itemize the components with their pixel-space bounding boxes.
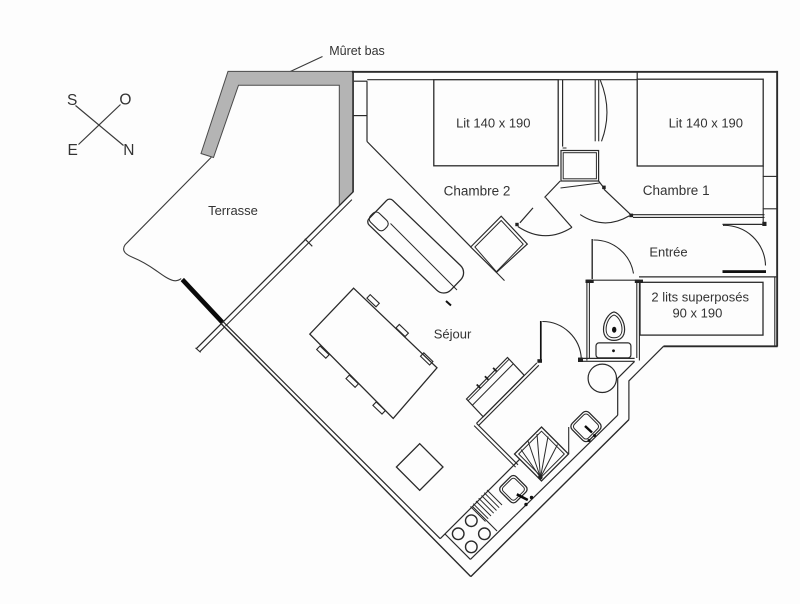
svg-text:Lit 140 x 190: Lit 140 x 190 <box>456 116 530 131</box>
svg-text:Lit 140 x 190: Lit 140 x 190 <box>669 116 743 131</box>
svg-text:Séjour: Séjour <box>434 327 472 342</box>
svg-text:N: N <box>123 142 134 159</box>
svg-text:S: S <box>67 92 77 109</box>
svg-text:Terrasse: Terrasse <box>208 203 258 218</box>
svg-text:Mûret bas: Mûret bas <box>329 44 385 58</box>
svg-text:E: E <box>68 142 78 159</box>
svg-text:Chambre 2: Chambre 2 <box>444 184 511 199</box>
svg-text:2 lits superposés: 2 lits superposés <box>651 290 749 305</box>
svg-text:90 x 190: 90 x 190 <box>672 306 722 321</box>
svg-text:Entrée: Entrée <box>649 245 687 260</box>
svg-text:Chambre 1: Chambre 1 <box>643 183 710 198</box>
svg-text:O: O <box>119 92 131 109</box>
